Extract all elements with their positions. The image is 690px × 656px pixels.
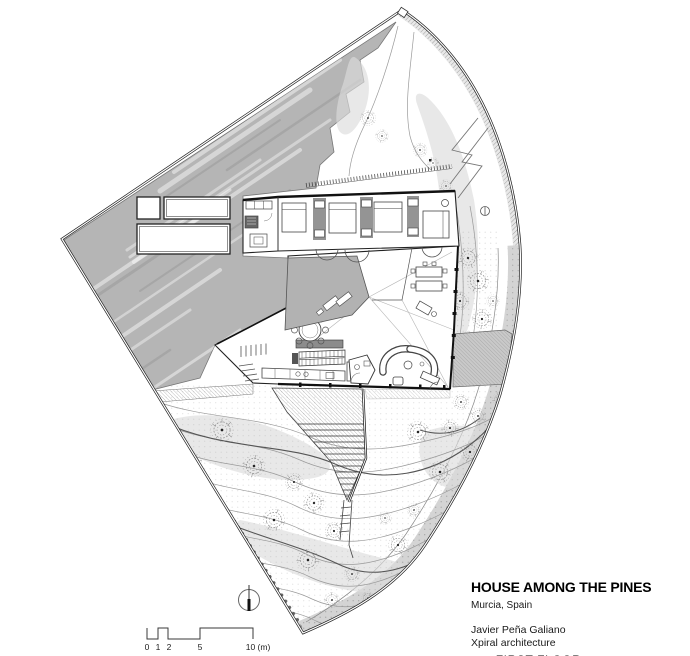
bed <box>423 211 449 238</box>
entry-walk-strip <box>365 389 450 399</box>
studio-name: Xpiral architecture <box>471 637 686 650</box>
internal-stair <box>292 350 345 366</box>
scale-bar <box>147 628 253 639</box>
pool-terrace <box>137 197 230 254</box>
side-table <box>442 200 449 207</box>
coffee-table <box>404 361 412 369</box>
pool-basin <box>137 197 160 219</box>
scale-label: 2 <box>167 642 172 652</box>
bed <box>374 202 402 232</box>
pool-basin <box>164 197 230 219</box>
drawing-sheet: 0 1 2 5 10 (m) HOUSE AMONG THE PINES Mur… <box>0 0 690 656</box>
north-arrow-icon <box>239 585 260 611</box>
scale-label: 10 (m) <box>246 642 271 652</box>
survey-dot <box>429 159 432 162</box>
scale-label: 0 <box>145 642 150 652</box>
pine-tree-icon <box>411 141 430 160</box>
pine-tree-icon <box>371 125 393 147</box>
floor-plan-drawing <box>0 0 690 656</box>
architect-name: Javier Peña Galiano <box>471 624 686 637</box>
plan-location: Murcia, Spain <box>471 600 686 611</box>
bedroom-wing <box>243 191 459 253</box>
scale-label: 1 <box>156 642 161 652</box>
scale-label: 5 <box>198 642 203 652</box>
wardrobe <box>296 340 343 348</box>
bed <box>329 203 356 233</box>
bed <box>282 203 306 232</box>
pool-basin <box>137 224 230 254</box>
title-block: HOUSE AMONG THE PINES Murcia, Spain Javi… <box>471 579 686 656</box>
plan-title: HOUSE AMONG THE PINES <box>471 579 686 595</box>
armchair <box>393 377 403 385</box>
